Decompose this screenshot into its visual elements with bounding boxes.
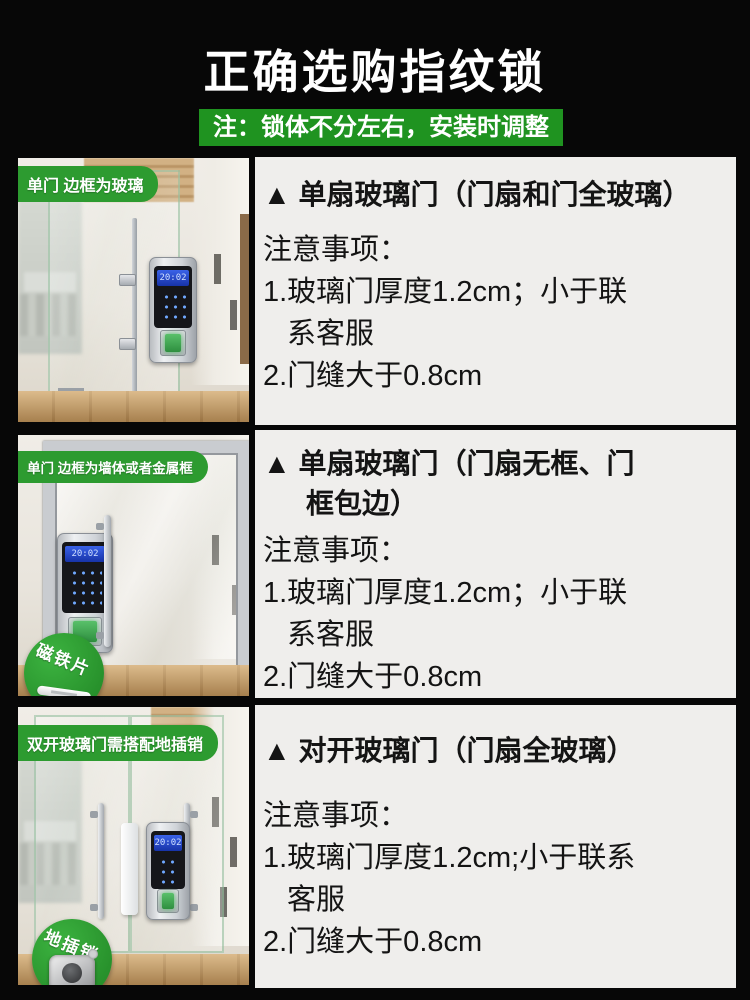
lock-front-panel: 20:02 <box>151 831 185 889</box>
note-line: 2.门缝大于0.8cm <box>263 656 728 698</box>
page-title: 正确选购指纹锁 <box>0 36 750 102</box>
photo-label: 单门 边框为玻璃 <box>18 166 158 202</box>
fingerprint-sensor <box>157 889 179 913</box>
door-slit <box>230 300 237 330</box>
panel-heading: ▲ 单扇玻璃门（门扇和门全玻璃） <box>263 175 728 215</box>
note-line: 客服 <box>287 879 728 921</box>
row2-photo: 20:02 磁铁片 单门 边框为墙体或者金属框 <box>18 435 249 696</box>
notes-title: 注意事项： <box>263 530 728 572</box>
info-panel-1: ▲ 单扇玻璃门（门扇和门全玻璃） 注意事项： 1.玻璃门厚度1.2cm；小于联 … <box>255 157 736 425</box>
note-line: 1.玻璃门厚度1.2cm;小于联系 <box>263 837 728 879</box>
fingerprint-sensor <box>160 330 186 356</box>
note-line: 系客服 <box>287 313 728 355</box>
magnet-strip-graphic <box>37 685 92 696</box>
lock-keypad <box>68 566 102 605</box>
floor-bolt-graphic <box>49 955 95 985</box>
panel-notes: 注意事项： 1.玻璃门厚度1.2cm；小于联 系客服 2.门缝大于0.8cm <box>263 229 728 397</box>
notes-title: 注意事项： <box>263 229 728 271</box>
lock-front-panel: 20:02 <box>154 266 192 328</box>
door-handle-left <box>98 803 104 919</box>
row1-photo: 20:02 单门 边框为玻璃 <box>18 158 249 422</box>
lock-screen: 20:02 <box>154 835 182 851</box>
panel-notes: 注意事项： 1.玻璃门厚度1.2cm;小于联系 客服 2.门缝大于0.8cm <box>263 795 728 963</box>
info-panel-3: ▲ 对开玻璃门（门扇全玻璃） 注意事项： 1.玻璃门厚度1.2cm;小于联系 客… <box>255 705 736 988</box>
glass-clamp <box>119 338 136 350</box>
fingerprint-lock: 20:02 <box>146 822 190 920</box>
photo-label: 单门 边框为墙体或者金属框 <box>18 451 208 483</box>
photo-label: 双开玻璃门需搭配地插销 <box>18 725 218 761</box>
glass-clamp <box>119 274 136 286</box>
note-line: 1.玻璃门厚度1.2cm；小于联 <box>263 572 728 614</box>
lock-screen: 20:02 <box>65 546 105 562</box>
lock-front-panel: 20:02 <box>62 542 108 613</box>
page: 正确选购指纹锁 注：锁体不分左右，安装时调整 20:02 单门 边框为玻璃 ▲ … <box>0 0 750 1000</box>
fingerprint-lock: 20:02 <box>149 257 197 363</box>
panel-heading-line2: 框包边） <box>306 484 728 524</box>
lock-keypad <box>160 290 186 324</box>
lock-screen: 20:02 <box>157 270 189 286</box>
note-line: 系客服 <box>287 614 728 656</box>
door-handle <box>104 515 111 647</box>
info-panel-2: ▲ 单扇玻璃门（门扇无框、门 框包边） 注意事项： 1.玻璃门厚度1.2cm；小… <box>255 430 736 698</box>
wood-floor <box>18 391 249 422</box>
notes-title: 注意事项： <box>263 795 728 837</box>
door-slit <box>214 254 221 284</box>
panel-heading: ▲ 单扇玻璃门（门扇无框、门 <box>263 444 728 484</box>
panel-notes: 注意事项： 1.玻璃门厚度1.2cm；小于联 系客服 2.门缝大于0.8cm <box>263 530 728 698</box>
window-slit <box>230 837 237 867</box>
note-line: 1.玻璃门厚度1.2cm；小于联 <box>263 271 728 313</box>
magnet-strip-on-door <box>121 823 138 915</box>
note-banner: 注：锁体不分左右，安装时调整 <box>199 109 563 146</box>
note-line: 2.门缝大于0.8cm <box>263 355 728 397</box>
row3-photo: 20:02 地插销 双开玻璃门需搭配地插销 <box>18 707 249 985</box>
note-line: 2.门缝大于0.8cm <box>263 921 728 963</box>
panel-heading: ▲ 对开玻璃门（门扇全玻璃） <box>263 731 728 771</box>
lock-keypad <box>157 855 179 887</box>
far-door <box>240 214 249 364</box>
door-handle <box>132 218 137 396</box>
